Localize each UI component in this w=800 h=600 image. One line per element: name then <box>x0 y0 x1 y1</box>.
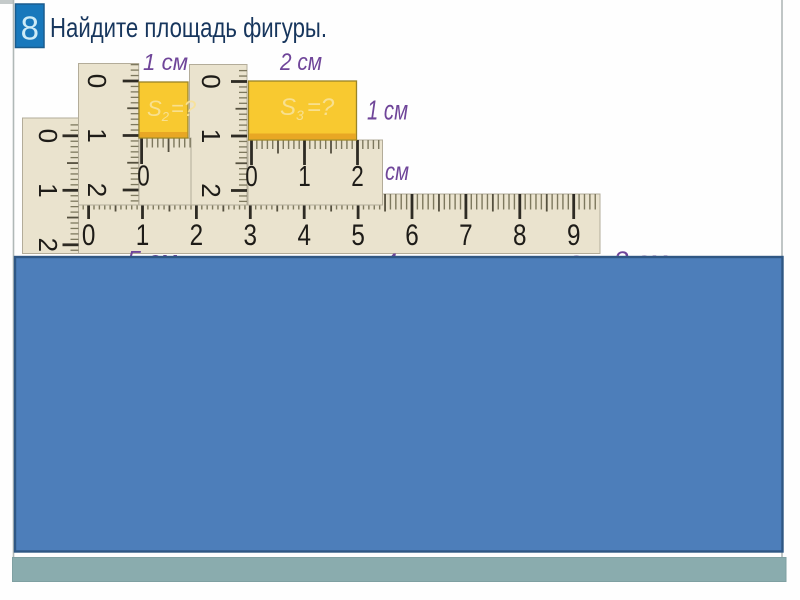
svg-text:Найдите площадь фигуры.: Найдите площадь фигуры. <box>50 12 327 43</box>
svg-text:7: 7 <box>459 219 473 252</box>
svg-text:S3=?: S3=? <box>280 94 335 123</box>
svg-text:S2=?: S2=? <box>147 96 197 124</box>
svg-text:1: 1 <box>82 128 112 142</box>
svg-text:1 см: 1 см <box>367 95 408 126</box>
svg-text:8: 8 <box>513 219 527 252</box>
svg-text:0: 0 <box>137 161 150 193</box>
svg-text:0: 0 <box>196 74 226 88</box>
svg-text:6: 6 <box>405 219 419 252</box>
svg-text:2: 2 <box>33 238 63 252</box>
svg-text:2: 2 <box>82 183 112 197</box>
svg-text:см: см <box>385 158 409 186</box>
svg-text:2: 2 <box>196 183 226 197</box>
svg-text:1: 1 <box>298 161 311 193</box>
svg-text:2 см: 2 см <box>279 49 322 76</box>
svg-text:1 см: 1 см <box>143 49 188 75</box>
svg-text:4: 4 <box>297 219 311 252</box>
svg-text:2: 2 <box>190 219 204 252</box>
svg-text:1: 1 <box>33 183 63 197</box>
svg-text:5: 5 <box>351 219 365 252</box>
svg-text:0: 0 <box>82 74 112 88</box>
svg-text:3: 3 <box>244 219 257 252</box>
svg-text:1: 1 <box>196 129 226 143</box>
svg-text:0: 0 <box>82 219 96 252</box>
svg-text:0: 0 <box>245 161 258 193</box>
svg-text:8: 8 <box>21 10 39 47</box>
svg-text:2: 2 <box>351 161 364 193</box>
svg-text:0: 0 <box>33 129 63 143</box>
